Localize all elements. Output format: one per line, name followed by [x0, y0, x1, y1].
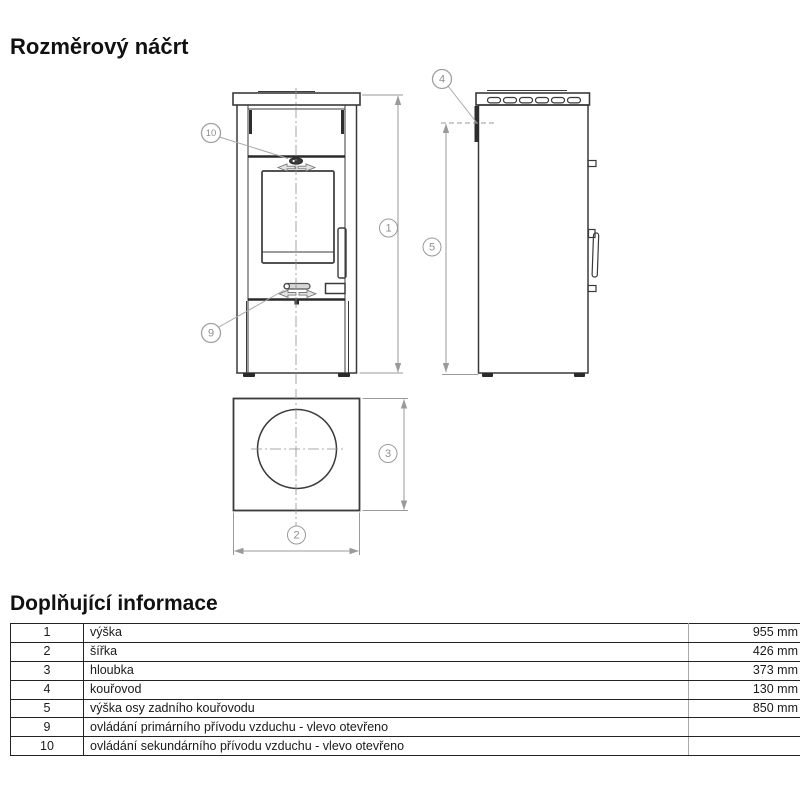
row-number: 2 [11, 642, 84, 661]
arrow-right-icon [299, 290, 316, 297]
door-glass [262, 171, 334, 263]
row-value [689, 718, 800, 737]
row-value: 955 mm [689, 624, 800, 643]
callout-1-label: 1 [385, 223, 391, 235]
leader-line [218, 290, 285, 328]
table-row: 4 kouřovod 130 mm [11, 680, 800, 699]
table-row: 9 ovládání primárního přívodu vzduchu - … [11, 718, 800, 737]
row-label: ovládání sekundárního přívodu vzduchu - … [84, 737, 689, 756]
row-number: 10 [11, 737, 84, 756]
row-value [689, 737, 800, 756]
row-label: šířka [84, 642, 689, 661]
leader-line [448, 86, 477, 123]
row-value: 130 mm [689, 680, 800, 699]
base-outline [234, 399, 360, 511]
row-number: 9 [11, 718, 84, 737]
callout-3-label: 3 [385, 448, 391, 460]
section-title: Doplňující informace [10, 592, 218, 616]
top-view [234, 389, 360, 531]
dimension-table: 1 výška 955 mm 2 šířka 426 mm 3 hloubka … [10, 623, 800, 756]
table-row: 5 výška osy zadního kouřovodu 850 mm [11, 699, 800, 718]
row-value: 373 mm [689, 661, 800, 680]
secondary-air-lever [278, 158, 315, 171]
table-row: 2 šířka 426 mm [11, 642, 800, 661]
front-view [233, 88, 360, 385]
flue-outlet [475, 106, 480, 142]
top-plate-front [233, 93, 360, 105]
dimension-width: 2 [234, 513, 360, 556]
row-number: 1 [11, 624, 84, 643]
row-value: 426 mm [689, 642, 800, 661]
callout-9-label: 9 [208, 328, 214, 340]
callout-primary-air: 9 [202, 290, 285, 343]
dimension-depth: 3 [363, 399, 409, 511]
foot-side-left [482, 373, 493, 377]
callout-flue: 4 [433, 70, 477, 123]
table-row: 1 výška 955 mm [11, 624, 800, 643]
callout-4-label: 4 [439, 74, 445, 86]
row-number: 5 [11, 699, 84, 718]
row-value: 850 mm [689, 699, 800, 718]
row-label: výška [84, 624, 689, 643]
callout-10-label: 10 [206, 128, 217, 139]
door-latch [295, 300, 300, 305]
ash-drawer [326, 284, 346, 294]
foot-side-right [574, 373, 585, 377]
hinge-pin-bottom [588, 286, 596, 292]
dimensional-drawing: 1 10 9 [0, 0, 800, 585]
row-label: výška osy zadního kouřovodu [84, 699, 689, 718]
dimension-flue-axis-height: 5 [423, 124, 478, 375]
row-label: kouřovod [84, 680, 689, 699]
callout-5-label: 5 [429, 242, 435, 254]
foot-front-left [243, 373, 255, 377]
arrow-left-icon [278, 164, 295, 171]
foot-front-right [338, 373, 350, 377]
row-number: 3 [11, 661, 84, 680]
table-row: 3 hloubka 373 mm [11, 661, 800, 680]
dimension-height: 1 [360, 95, 404, 373]
row-label: hloubka [84, 661, 689, 680]
callout-2-label: 2 [293, 530, 299, 542]
row-number: 4 [11, 680, 84, 699]
callout-secondary-air: 10 [202, 124, 289, 159]
side-view [441, 91, 599, 378]
vent-slots [488, 98, 581, 103]
table-row: 10 ovládání sekundárního přívodu vzduchu… [11, 737, 800, 756]
row-label: ovládání primárního přívodu vzduchu - vl… [84, 718, 689, 737]
arrow-right-icon [298, 164, 315, 171]
body-side [479, 105, 589, 373]
hinge-pin-top [588, 161, 596, 167]
door-handle-side [589, 230, 599, 278]
